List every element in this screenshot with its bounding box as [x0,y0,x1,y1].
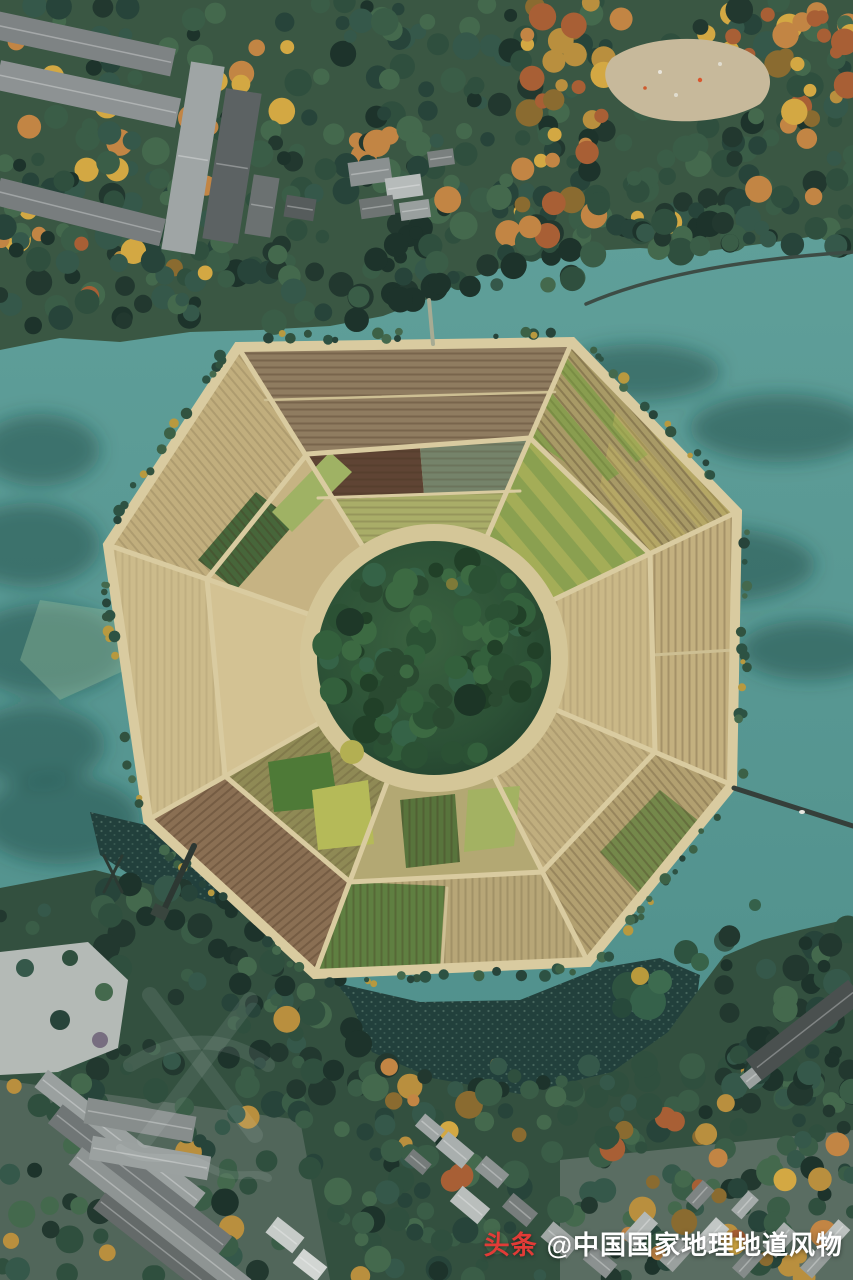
tree [275,976,296,997]
forest-tree [509,680,531,702]
tree [381,1139,404,1162]
bush [569,969,576,976]
tree [98,903,123,928]
tree [609,1107,624,1122]
tree [3,1233,19,1249]
bush [738,537,749,548]
tree [7,1079,22,1094]
tree [38,904,51,917]
bush [101,582,107,588]
forest-tree [500,573,516,589]
tree [82,118,98,134]
tree [512,1128,527,1143]
tree [277,151,291,165]
scene [0,0,853,1280]
bush [665,426,676,437]
tree [385,1092,402,1109]
tree [27,1163,42,1178]
bush [555,964,565,974]
tree [418,101,438,121]
bush [332,337,338,343]
tree [805,188,822,205]
tree [537,1115,552,1130]
bush [590,347,597,354]
tree [115,276,135,296]
forest-tree [488,693,502,707]
bush [618,372,629,383]
tree [454,142,478,166]
tree [823,1105,836,1118]
tree [301,1058,326,1083]
bush [493,334,498,339]
tree [205,3,226,24]
tree [808,1167,832,1191]
bush [122,760,131,769]
bush [516,970,527,981]
tree [41,231,55,245]
bush [215,361,223,369]
forest-tree [312,630,342,660]
tree [344,307,369,332]
tree [375,1115,396,1136]
tree [323,1060,344,1081]
bush [372,328,384,340]
bush [742,593,748,599]
tree [498,1103,513,1118]
tree [721,959,733,971]
forest-tree [489,618,509,638]
tree [386,1207,410,1231]
tree [560,267,585,292]
bush [625,915,635,925]
tree [229,973,251,995]
tree [781,99,807,125]
tree [504,9,517,22]
bush [159,845,170,856]
tree [362,1191,377,1206]
bush [742,581,752,591]
tree [0,1164,20,1185]
bush [609,369,618,378]
tree [127,70,142,85]
tree [792,1114,806,1128]
tree [116,312,133,329]
tree [529,3,556,30]
forest-tree [374,716,392,734]
bush [285,333,296,344]
bush [640,402,650,412]
bush [109,631,121,643]
bush [262,936,273,947]
bush [672,869,678,875]
tree [826,1133,850,1157]
bush [687,453,693,459]
tree [508,1069,522,1083]
tree [690,236,710,256]
tree [211,1189,239,1217]
bush [394,335,401,342]
tree [610,8,633,31]
tree [281,279,306,304]
tree [299,999,326,1026]
tree [361,1074,388,1101]
tree [387,287,413,313]
tree [425,251,448,274]
bush [638,914,644,920]
bush [279,330,286,337]
tree [575,141,598,164]
tree [74,237,88,251]
bush [714,814,721,821]
tree [193,1134,206,1147]
bush [324,977,335,988]
tree [56,1226,84,1254]
tree [430,134,444,148]
tree [75,289,100,314]
tree [417,1202,434,1219]
tree [175,293,189,307]
tree [450,212,478,240]
tree [556,1075,568,1087]
tree [384,233,408,257]
tree [110,254,128,272]
tree [142,137,170,165]
tree [712,212,734,234]
tree [70,1197,88,1215]
tree [334,1121,350,1137]
bush [287,961,294,968]
tree [790,57,804,71]
bush [111,652,119,660]
tree [748,136,767,155]
bush [698,828,704,834]
tree [434,186,461,213]
forest-tree [363,698,384,719]
tree [819,933,843,957]
tree [418,81,434,97]
tree [381,1058,398,1075]
bush [272,946,281,955]
tree [745,176,772,203]
tree [313,69,329,85]
bush [738,769,748,779]
watermark-brand: 头条 [484,1230,538,1260]
bush [419,971,431,983]
bush [539,970,551,982]
tree [725,29,741,45]
bush [703,459,710,466]
tree [41,1197,59,1215]
tree [78,162,97,181]
tree [53,171,74,192]
tree [357,1123,374,1140]
tree [286,1079,306,1099]
bush [646,896,652,902]
bush [604,952,614,962]
tree [280,40,294,54]
tree [26,247,51,272]
tree [168,989,184,1005]
tree [620,1094,637,1111]
tree [720,1003,740,1023]
tree [141,248,166,273]
tree [817,28,831,42]
tree [807,10,824,27]
tree [557,1105,578,1126]
tree [379,69,400,90]
tree [429,1261,449,1280]
tree [501,252,527,278]
tree [270,994,282,1006]
tree [540,277,555,292]
tree [475,1079,502,1106]
tree [96,151,120,175]
bush [135,799,144,808]
tree [545,1086,566,1107]
tree [431,1230,453,1252]
forest-tree [400,664,414,678]
tree [345,1030,372,1057]
tree [595,1126,618,1149]
tree [511,158,534,181]
tree [826,168,849,191]
tree [86,60,102,76]
bush [492,967,501,976]
tree [327,1205,345,1223]
bush [637,906,645,914]
tree [305,263,324,282]
tree [273,1006,300,1033]
bush [679,855,685,861]
bush [734,714,743,723]
tree [149,168,170,189]
tree [295,1111,313,1129]
tree [407,1094,419,1106]
bush [595,353,601,359]
tree [315,158,337,180]
tree [646,1175,660,1189]
tree [409,226,423,240]
tree [349,8,374,33]
bush [407,975,415,983]
forest-tree [498,600,518,620]
tree [371,8,399,36]
tree [781,233,804,256]
bush [164,427,176,439]
tree [699,1105,713,1119]
tree [9,243,24,258]
bush [689,845,698,854]
tree [299,1157,322,1180]
tree [364,1246,391,1273]
forest-tree [467,743,487,763]
tree [721,234,738,251]
tree [714,975,733,994]
bush [694,449,701,456]
tree [268,245,287,264]
bush [546,328,556,338]
boat [799,810,805,814]
bush [113,505,125,517]
tree [727,151,743,167]
bush [181,408,192,419]
tree [429,273,451,295]
forest-tree [527,642,544,659]
bush [530,332,537,339]
tree [31,153,44,166]
bush [102,598,111,607]
tree [490,1058,508,1076]
tree [748,108,764,124]
tree [215,1119,231,1135]
bush [660,873,671,884]
tree [363,130,390,157]
tree [375,1180,399,1204]
tree [123,131,142,150]
tree [709,1149,728,1168]
tree [324,1178,352,1206]
tree [217,270,235,288]
forest-tree [441,741,464,764]
bush [199,880,207,888]
tree [48,305,73,330]
tree [743,232,756,245]
tree [44,105,68,129]
forest-tree [375,651,401,677]
bush [157,444,167,454]
tree [580,241,606,267]
tree [679,1053,705,1079]
bush [150,835,155,840]
tree [352,1212,374,1234]
tree [269,1043,288,1062]
tree [651,209,677,235]
tree [773,997,798,1022]
tree [693,19,709,35]
tree [377,107,391,121]
tree [420,14,436,30]
tree [667,238,695,266]
tree [542,191,566,215]
tree [555,79,567,91]
tree [730,1118,748,1136]
tree [675,1170,692,1187]
bush [304,330,312,338]
tree [417,1069,432,1084]
forest-tree [418,620,431,633]
tree [143,1078,168,1103]
bush [439,969,449,979]
tree [490,278,503,291]
forest-tree [487,640,503,656]
tree [657,150,675,168]
tree [182,8,206,32]
bush [736,643,747,654]
tree [636,1093,663,1120]
bush [623,925,633,935]
tree [467,93,482,108]
tree [275,13,294,32]
tree [722,127,743,148]
forest-tree [393,568,418,593]
tree [615,134,632,151]
tree [323,123,344,144]
tree [355,1232,369,1246]
tree [561,13,587,39]
tree [799,936,813,950]
tree [26,921,40,935]
tree [825,1053,840,1068]
tree [480,132,494,146]
tree [761,8,775,22]
bush [364,977,369,982]
tree [348,286,369,307]
forest-tree [401,742,428,769]
tree [756,959,776,979]
tree [459,276,480,297]
tree [695,1123,717,1145]
tree [673,136,699,162]
tree [563,43,587,67]
tree [336,16,350,30]
tree [659,168,676,185]
bush [202,375,210,383]
tree [594,109,608,123]
forest-tree [429,563,444,578]
tree [13,159,26,172]
tree [98,121,122,145]
tree [486,185,511,210]
bush [744,529,750,535]
tree [818,960,831,973]
bush [323,335,333,345]
tree [838,204,853,219]
aerial-photo-bagua-field: 头条@中国国家地理地道风物 [0,0,853,1280]
tree [316,230,329,243]
bush [397,971,406,980]
tree [520,28,534,42]
bush [742,559,748,565]
bush [169,418,179,428]
tree [99,1244,116,1261]
tree [783,955,810,982]
bush [219,892,228,901]
tree [797,128,818,149]
tree [24,317,42,335]
bush [370,980,377,987]
forest-tree [468,565,497,594]
tree [17,115,41,139]
tree [719,925,741,947]
tree [286,220,307,241]
forest-tree [400,690,423,713]
bush [294,962,304,972]
tree [239,1177,257,1195]
tree [188,972,206,990]
tree [797,1061,821,1085]
tree [314,303,332,321]
tree [827,151,842,166]
bush [101,589,108,596]
tree [476,254,498,276]
tree [730,1046,748,1064]
tree [301,109,317,125]
tree [627,171,642,186]
tree [467,77,484,94]
tree [774,1168,797,1191]
tree [93,1229,108,1244]
tree [581,1197,598,1214]
